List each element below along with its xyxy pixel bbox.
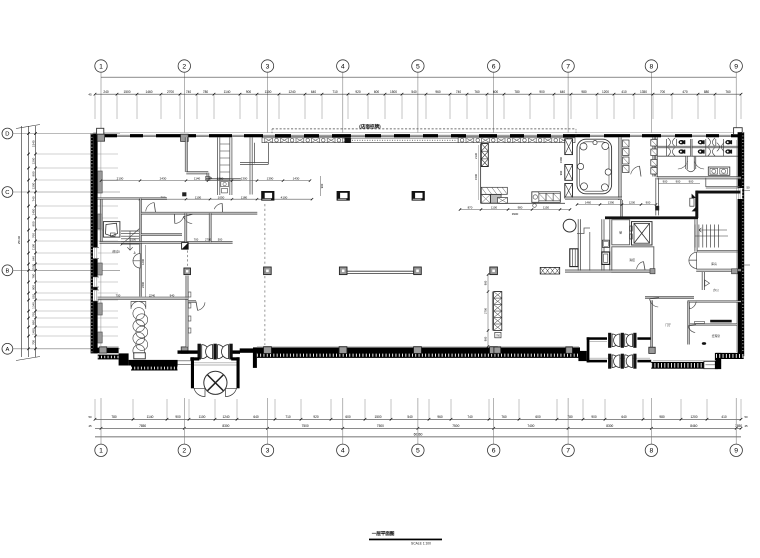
svg-text:1100: 1100 — [491, 206, 498, 210]
svg-text:45: 45 — [88, 424, 92, 428]
svg-text:1260: 1260 — [31, 157, 35, 164]
svg-text:4: 4 — [341, 448, 345, 455]
svg-text:900: 900 — [484, 280, 488, 285]
svg-text:640: 640 — [621, 415, 627, 419]
svg-text:7850: 7850 — [139, 424, 146, 428]
svg-text:1100: 1100 — [195, 195, 202, 199]
svg-text:A: A — [5, 347, 9, 353]
svg-text:消控: 消控 — [629, 257, 635, 262]
svg-text:1200: 1200 — [141, 259, 145, 265]
svg-text:890: 890 — [31, 320, 35, 325]
svg-text:1100: 1100 — [31, 243, 35, 250]
svg-text:9: 9 — [734, 63, 738, 70]
svg-text:900: 900 — [320, 183, 324, 188]
svg-text:5: 5 — [416, 448, 420, 455]
svg-text:1460: 1460 — [585, 201, 592, 205]
svg-text:540: 540 — [411, 90, 417, 94]
svg-text:1200: 1200 — [629, 201, 636, 205]
svg-text:8: 8 — [650, 63, 654, 70]
svg-text:2700: 2700 — [484, 308, 488, 314]
svg-text:7500: 7500 — [452, 424, 459, 428]
svg-text:SCALE 1:100: SCALE 1:100 — [411, 541, 431, 545]
svg-text:1350: 1350 — [640, 90, 647, 94]
svg-text:1150: 1150 — [543, 206, 550, 210]
svg-text:M1: M1 — [209, 176, 213, 180]
svg-text:410: 410 — [721, 415, 727, 419]
svg-text:780: 780 — [31, 273, 35, 278]
svg-text:一层平面图: 一层平面图 — [372, 530, 395, 537]
svg-text:2: 2 — [182, 448, 186, 455]
svg-text:1100: 1100 — [265, 90, 272, 94]
svg-text:6: 6 — [492, 448, 496, 455]
svg-text:1450: 1450 — [31, 328, 35, 335]
svg-text:760: 760 — [501, 415, 507, 419]
svg-text:2700: 2700 — [205, 238, 211, 242]
svg-text:3900: 3900 — [512, 212, 519, 216]
svg-text:1500: 1500 — [374, 415, 381, 419]
svg-text:920: 920 — [355, 90, 361, 94]
svg-text:50: 50 — [88, 415, 92, 419]
svg-text:760: 760 — [31, 312, 35, 317]
svg-text:2130: 2130 — [474, 153, 478, 159]
svg-text:1580: 1580 — [559, 157, 563, 163]
svg-text:1050: 1050 — [218, 195, 225, 199]
svg-text:900: 900 — [31, 285, 35, 290]
svg-text:(休息): (休息) — [112, 248, 120, 253]
svg-text:740: 740 — [186, 90, 192, 94]
svg-text:600: 600 — [374, 90, 380, 94]
svg-text:1540: 1540 — [31, 140, 35, 147]
svg-text:980: 980 — [659, 415, 665, 419]
svg-text:760: 760 — [725, 90, 731, 94]
svg-text:640: 640 — [560, 90, 566, 94]
svg-text:900: 900 — [646, 201, 651, 205]
svg-text:410: 410 — [621, 90, 627, 94]
svg-text:库房: 库房 — [711, 261, 717, 266]
svg-text:740: 740 — [467, 415, 473, 419]
svg-text:620: 620 — [31, 294, 35, 299]
svg-text:920: 920 — [313, 415, 319, 419]
svg-text:2430: 2430 — [160, 177, 167, 181]
svg-text:门厅: 门厅 — [665, 322, 671, 327]
svg-text:900: 900 — [689, 180, 694, 184]
svg-text:900: 900 — [246, 90, 252, 94]
svg-text:4100: 4100 — [281, 195, 288, 199]
svg-text:2700: 2700 — [167, 90, 174, 94]
svg-text:900: 900 — [175, 415, 181, 419]
svg-text:1: 1 — [99, 63, 103, 70]
svg-text:900: 900 — [663, 180, 668, 184]
svg-text:7400: 7400 — [527, 424, 534, 428]
svg-text:2100: 2100 — [130, 238, 136, 242]
svg-text:900: 900 — [676, 180, 681, 184]
svg-text:240: 240 — [103, 90, 109, 94]
svg-text:500: 500 — [218, 238, 223, 242]
svg-text:780: 780 — [514, 90, 520, 94]
svg-text:8300: 8300 — [222, 424, 229, 428]
svg-text:700: 700 — [660, 90, 666, 94]
svg-text:9: 9 — [734, 448, 738, 455]
svg-text:6: 6 — [492, 63, 496, 70]
svg-text:900: 900 — [539, 90, 545, 94]
svg-text:1430: 1430 — [293, 177, 300, 181]
svg-text:780: 780 — [111, 415, 117, 419]
svg-text:1200: 1200 — [602, 90, 609, 94]
svg-text:经理室: 经理室 — [712, 334, 721, 338]
svg-text:45: 45 — [88, 93, 92, 97]
svg-text:1260: 1260 — [217, 177, 224, 181]
svg-text:1140: 1140 — [147, 415, 154, 419]
svg-text:1240: 1240 — [222, 415, 229, 419]
svg-text:780: 780 — [203, 90, 209, 94]
svg-text:7: 7 — [566, 448, 570, 455]
svg-text:900: 900 — [484, 336, 488, 341]
svg-text:8: 8 — [650, 448, 654, 455]
svg-text:960: 960 — [435, 90, 441, 94]
svg-text:900: 900 — [31, 221, 35, 226]
svg-text:1500: 1500 — [123, 90, 130, 94]
svg-text:1140: 1140 — [194, 177, 201, 181]
svg-text:700: 700 — [194, 238, 199, 242]
svg-text:600: 600 — [345, 415, 351, 419]
svg-text:4: 4 — [341, 63, 345, 70]
svg-text:640: 640 — [31, 256, 35, 261]
svg-text:8300: 8300 — [606, 424, 613, 428]
svg-text:C: C — [5, 190, 9, 196]
svg-text:600: 600 — [535, 415, 541, 419]
svg-text:45: 45 — [744, 424, 748, 428]
svg-text:880: 880 — [704, 90, 710, 94]
svg-text:740: 740 — [31, 196, 35, 201]
svg-text:900: 900 — [591, 415, 597, 419]
svg-text:990: 990 — [31, 171, 35, 176]
svg-text:D: D — [5, 132, 9, 138]
svg-text:3: 3 — [266, 448, 270, 455]
svg-text:640: 640 — [253, 415, 259, 419]
svg-text:1500: 1500 — [390, 90, 397, 94]
svg-text:1390: 1390 — [608, 201, 615, 205]
svg-text:8460: 8460 — [690, 424, 697, 428]
svg-text:1390: 1390 — [267, 177, 274, 181]
svg-text:1300: 1300 — [241, 177, 248, 181]
svg-text:710: 710 — [332, 90, 338, 94]
svg-text:(店面招牌): (店面招牌) — [359, 123, 381, 130]
svg-text:B: B — [5, 268, 9, 274]
svg-text:760: 760 — [474, 90, 480, 94]
svg-text:760: 760 — [31, 233, 35, 238]
svg-text:5: 5 — [416, 63, 420, 70]
svg-text:1: 1 — [99, 448, 103, 455]
svg-text:940: 940 — [170, 293, 175, 297]
svg-text:980: 980 — [518, 206, 523, 210]
svg-text:710: 710 — [285, 415, 291, 419]
svg-text:25140: 25140 — [17, 235, 21, 244]
svg-text:1340: 1340 — [31, 302, 35, 309]
svg-text:2: 2 — [182, 63, 186, 70]
svg-text:980: 980 — [581, 90, 587, 94]
svg-text:50: 50 — [744, 415, 748, 419]
svg-text:960: 960 — [437, 415, 443, 419]
svg-text:750: 750 — [116, 293, 121, 297]
svg-text:办公: 办公 — [713, 287, 719, 292]
svg-text:2400: 2400 — [141, 282, 145, 288]
svg-text:1500: 1500 — [31, 263, 35, 270]
svg-text:640: 640 — [311, 90, 317, 94]
svg-text:7: 7 — [566, 63, 570, 70]
svg-text:上: 上 — [133, 250, 136, 255]
svg-text:600: 600 — [493, 90, 499, 94]
svg-text:50: 50 — [746, 186, 750, 190]
svg-text:3: 3 — [266, 63, 270, 70]
svg-text:540: 540 — [407, 415, 413, 419]
svg-text:1460: 1460 — [145, 90, 152, 94]
svg-text:1200: 1200 — [31, 182, 35, 189]
svg-text:1450: 1450 — [31, 208, 35, 215]
svg-text:740: 740 — [456, 90, 462, 94]
svg-text:1240: 1240 — [288, 90, 295, 94]
svg-text:470: 470 — [682, 90, 688, 94]
svg-text:储: 储 — [619, 230, 622, 235]
svg-text:2240: 2240 — [149, 293, 156, 297]
svg-text:700: 700 — [31, 340, 35, 345]
svg-text:1180: 1180 — [241, 195, 248, 199]
svg-text:1500: 1500 — [474, 174, 478, 180]
svg-text:7500: 7500 — [302, 424, 309, 428]
svg-text:1200: 1200 — [690, 415, 697, 419]
svg-text:2100: 2100 — [117, 177, 124, 181]
svg-text:990: 990 — [559, 170, 563, 175]
svg-text:7500: 7500 — [377, 424, 384, 428]
svg-text:1100: 1100 — [199, 415, 206, 419]
svg-text:1140: 1140 — [224, 90, 231, 94]
svg-text:870: 870 — [468, 206, 473, 210]
